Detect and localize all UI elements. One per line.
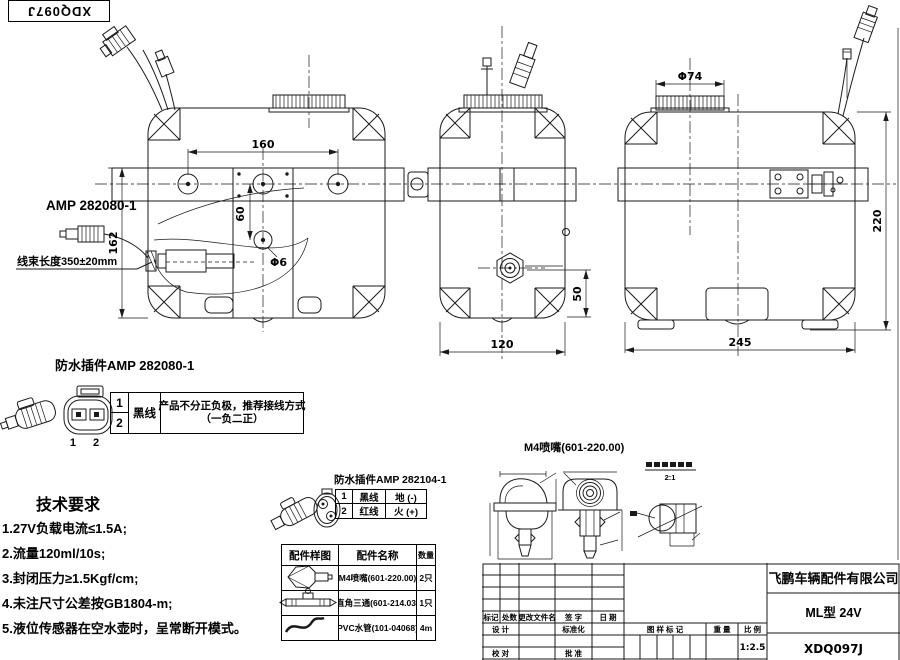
plug2-r2-pol: 火 (+) xyxy=(386,504,426,518)
front-dimensions: 160 60 Φ6 162 xyxy=(107,138,338,318)
top-fittings xyxy=(481,41,540,95)
parts-r2-glyph xyxy=(282,591,339,616)
parts-r1-qty: 2只 xyxy=(417,566,435,591)
parts-r1-glyph xyxy=(282,566,339,591)
parts-r2-name: 直角三通(601-214.03) xyxy=(339,591,417,616)
tb-rev-date: 日 期 xyxy=(599,612,617,622)
plug1-connector-drawings: 1 2 xyxy=(0,386,112,449)
tech-item-5: 5.液位传感器在空水壶时，呈常断开模式。 xyxy=(2,616,280,641)
filler-cap xyxy=(459,95,547,112)
tech-title: 技术要求 xyxy=(2,496,280,516)
plug2-r1-pol: 地 (-) xyxy=(386,490,426,504)
wire-connector-small xyxy=(153,49,174,77)
plug2-r2-wire: 红线 xyxy=(353,504,386,518)
parts-r2-qty: 1只 xyxy=(417,591,435,616)
amp-connector-label: AMP 282080-1 xyxy=(46,198,137,213)
tb-approve-label: 批 准 xyxy=(565,648,583,658)
parts-header-sample: 配件样图 xyxy=(282,545,339,566)
tb-rev-mark: 标记 xyxy=(483,612,499,622)
tech-item-2: 2.流量120ml/10s; xyxy=(2,541,280,566)
corner-gussets xyxy=(625,112,855,320)
side-dimensions: 50 120 xyxy=(440,270,591,356)
tb-model: ML型 24V xyxy=(805,605,862,620)
parts-r1-name: M4喷嘴(601-220.00) xyxy=(339,566,417,591)
tb-rev-file: 更改文件名 xyxy=(518,612,556,622)
tb-design-label: 设 计 xyxy=(492,624,510,634)
centerlines xyxy=(95,26,898,560)
dim-50: 50 xyxy=(571,286,584,302)
dim-162: 162 xyxy=(107,232,120,255)
parts-header-name: 配件名称 xyxy=(339,545,417,566)
bottom-plate xyxy=(706,288,768,320)
dim-160: 160 xyxy=(252,138,275,151)
tb-rev-count: 处数 xyxy=(501,612,517,622)
tb-standard-label: 标准化 xyxy=(561,624,585,634)
plug1-wire-label: 黑线 xyxy=(129,393,161,433)
tb-drawing-no: XDQ097J xyxy=(804,642,863,656)
wire-connector-large xyxy=(94,21,135,59)
tech-item-3: 3.封闭压力≥1.5Kgf/cm; xyxy=(2,566,280,591)
plug2-title: 防水插件AMP 282104-1 xyxy=(334,472,446,487)
dim-phi74: Φ74 xyxy=(678,70,703,83)
plug1-title: 防水插件AMP 282080-1 xyxy=(55,355,194,374)
hex-fitting xyxy=(497,229,570,284)
plug1-note-line1: 产品不分正负极，推荐接线方式 xyxy=(159,400,306,413)
harness-wires xyxy=(838,5,880,116)
plug1-note-line2: （一负二正） xyxy=(201,413,264,426)
mounting-band xyxy=(408,168,576,201)
plug1-row1-no: 1 xyxy=(111,393,129,413)
harness-length-label: 线束长度350±20mm xyxy=(17,254,117,268)
plug2-wiring-table: 1 黑线 地 (-) 2 红线 火 (+) xyxy=(335,489,427,519)
parts-r3-name: PVC水管(101-04068) xyxy=(339,616,417,640)
corner-drawing-code-box: XDQ097J xyxy=(8,0,110,22)
mounting-band xyxy=(112,168,404,318)
nozzle-detail-title: M4喷嘴(601-220.00) xyxy=(524,440,625,454)
plug1-note-cell: 产品不分正负极，推荐接线方式 （一负二正） xyxy=(161,393,303,433)
detail-scale-label: 2:1 xyxy=(665,473,676,482)
tb-stamp-label: 图 样 标 记 xyxy=(647,624,684,634)
corner-gussets xyxy=(440,108,565,318)
tb-scale-label: 比 例 xyxy=(744,624,762,634)
plug1-wiring-table: 1 黑线 产品不分正负极，推荐接线方式 （一负二正） 2 xyxy=(110,392,304,434)
tb-scale-value: 1:2.5 xyxy=(740,643,766,653)
parts-r3-qty: 4m xyxy=(417,616,435,640)
pin-numbers-label: 1 2 xyxy=(70,437,106,449)
tb-rev-sign: 签 字 xyxy=(564,612,583,622)
tech-item-1: 1.27V负载电流≤1.5A; xyxy=(2,516,280,541)
rear-view: Φ74 220 245 xyxy=(618,5,891,353)
tb-check-label: 校 对 xyxy=(492,648,510,658)
dim-phi6: Φ6 xyxy=(270,256,287,269)
cad-drawing-sheet: 160 60 Φ6 162 AMP 282080-1 线束长度350±20mm xyxy=(0,0,900,660)
side-view: 50 120 xyxy=(408,41,591,356)
parts-r3-glyph xyxy=(282,616,339,640)
harness-wires xyxy=(94,21,175,110)
plug2-r1-no: 1 xyxy=(336,490,353,504)
mounting-band xyxy=(618,168,868,201)
plug2-r1-wire: 黑线 xyxy=(353,490,386,504)
parts-table: 配件样图 配件名称 数量 M4喷嘴(601-220.00) 2只 直角三通(60… xyxy=(281,544,436,641)
dim-60: 60 xyxy=(234,206,247,222)
dim-120: 120 xyxy=(491,338,514,351)
dim-245: 245 xyxy=(729,336,752,349)
plug1-row2-no: 2 xyxy=(111,413,129,433)
corner-drawing-code: XDQ097J xyxy=(27,4,91,19)
parts-header-qty: 数量 xyxy=(417,545,435,566)
tb-company: 飞鹏车辆配件有限公司 xyxy=(768,571,898,586)
tb-weight-label: 重 量 xyxy=(713,624,731,634)
dim-220: 220 xyxy=(871,209,884,232)
front-view: 160 60 Φ6 162 AMP 282080-1 线束长度350±20mm xyxy=(16,21,404,322)
nozzle-detail: M4喷嘴(601-220.00) xyxy=(490,440,702,559)
tech-item-4: 4.未注尺寸公差按GB1804-m; xyxy=(2,591,280,616)
title-block: 标记 处数 更改文件名 签 字 日 期 设 计 标准化 校 对 批 准 图 样 … xyxy=(482,563,900,660)
technical-requirements: 技术要求 1.27V负载电流≤1.5A; 2.流量120ml/10s; 3.封闭… xyxy=(2,496,280,641)
plug2-r2-no: 2 xyxy=(336,504,353,518)
